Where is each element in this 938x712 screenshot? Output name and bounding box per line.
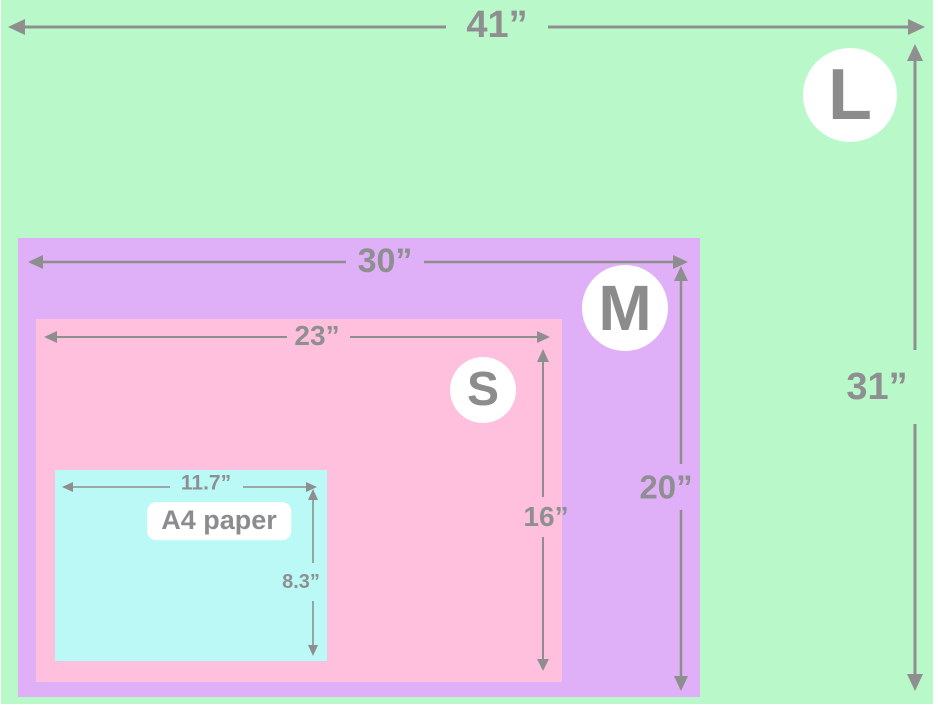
dimension-label-m-height: 20” <box>639 471 692 504</box>
dimension-arrows <box>0 0 938 712</box>
size-m-badge: M <box>582 265 668 351</box>
size-s-badge-letter: S <box>467 366 499 414</box>
a4-paper-label: A4 paper <box>147 502 291 540</box>
size-s-badge: S <box>450 357 516 423</box>
size-comparison-diagram: 41” 31” 30” 20” 23” 16” 11.7” 8.3” L M S… <box>0 0 938 712</box>
dimension-label-s-height: 16” <box>523 503 568 531</box>
dimension-label-s-width: 23” <box>294 322 339 350</box>
size-l-badge-letter: L <box>828 59 872 131</box>
dimension-label-l-width: 41” <box>466 6 527 44</box>
size-m-badge-letter: M <box>598 276 651 340</box>
dimension-label-a4-width: 11.7” <box>181 473 231 494</box>
dimension-label-l-height: 31” <box>846 368 907 406</box>
dimension-label-m-width: 30” <box>358 244 413 278</box>
dimension-label-a4-height: 8.3” <box>282 572 320 592</box>
size-l-badge: L <box>803 48 897 142</box>
arrow-height-31 <box>907 44 923 691</box>
